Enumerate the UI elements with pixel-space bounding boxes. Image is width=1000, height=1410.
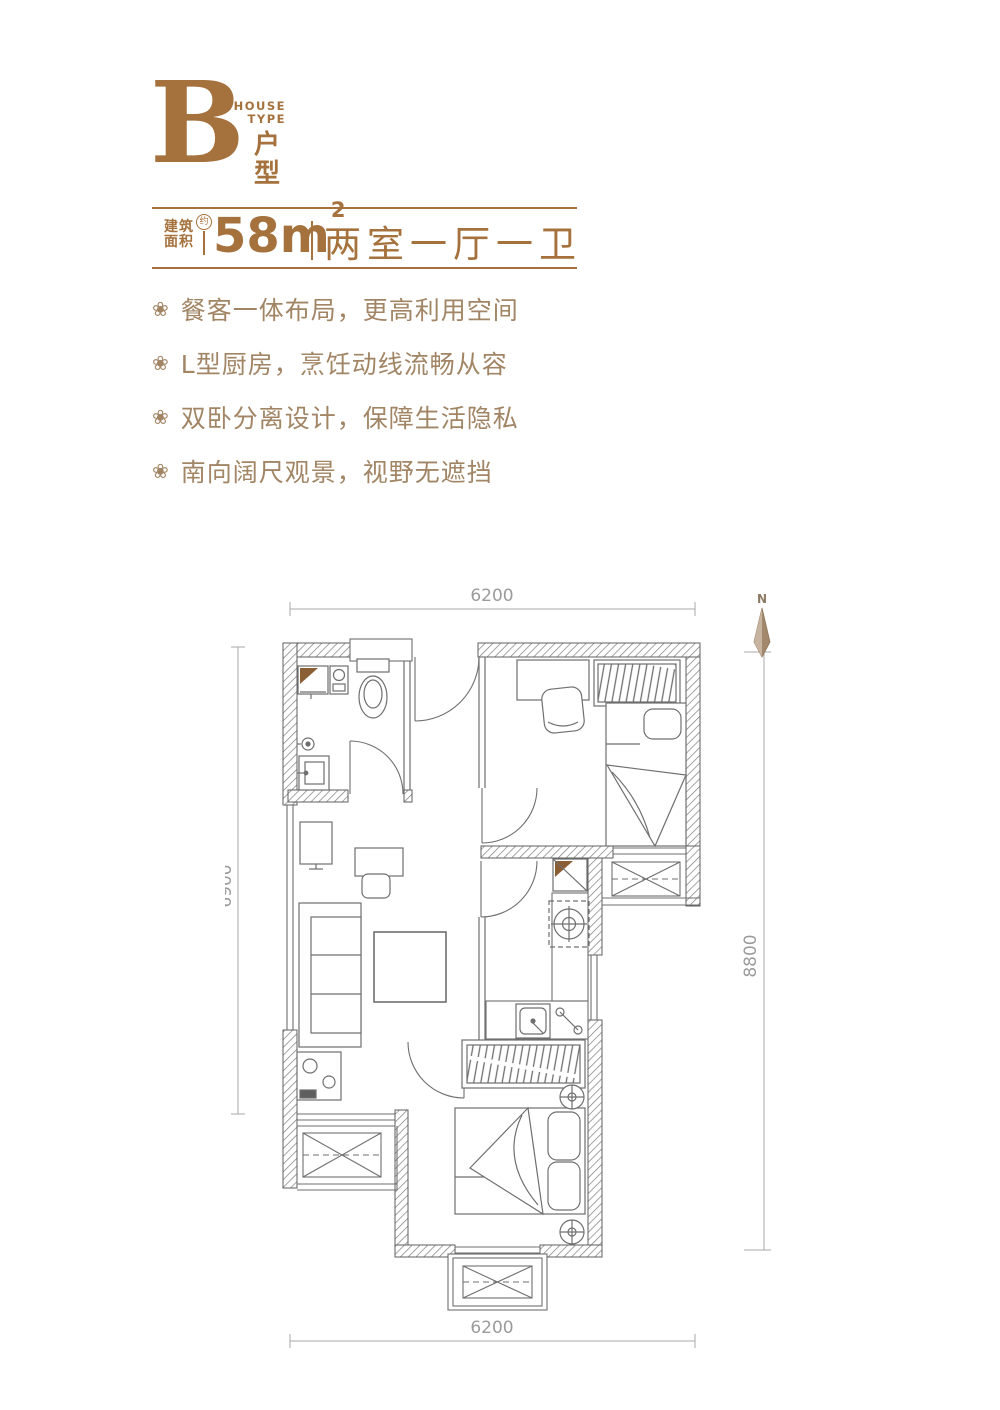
area-label-line2: 面积 <box>164 235 194 250</box>
dim-right-label: 8800 <box>741 934 761 977</box>
sofa-icon <box>299 903 361 1047</box>
area-label: 建筑 面积 <box>164 220 194 251</box>
balcony <box>448 1254 547 1310</box>
ac-platform-left <box>297 1126 397 1190</box>
approx-stem <box>203 231 205 255</box>
feature-text: 双卧分离设计，保障生活隐私 <box>181 399 519 435</box>
north-label: N <box>757 592 767 606</box>
dimension-right: 8800 <box>741 652 771 1250</box>
house-type-en: HOUSE TYPE <box>222 100 286 126</box>
bath-cabinet-icon <box>330 666 348 694</box>
toilet-icon <box>357 659 389 718</box>
washer-icon <box>298 666 328 699</box>
feature-item: ❀餐客一体布局，更高利用空间 <box>152 296 519 322</box>
coffee-table-icon <box>374 932 446 1002</box>
feature-item: ❀双卧分离设计，保障生活隐私 <box>152 404 519 430</box>
basin-icon <box>297 756 329 790</box>
layout-description: 两室一厅一卫 <box>324 214 582 268</box>
feature-text: L型厨房，烹饪动线流畅从容 <box>181 345 508 381</box>
area-number: 58 <box>213 208 280 264</box>
floor-plan: 6200 6900 8800 6200 N <box>225 580 800 1360</box>
house-type-en-line2: TYPE <box>222 113 286 126</box>
divider-bottom <box>152 267 577 269</box>
equipment-platform-right <box>602 862 700 905</box>
feature-text: 餐客一体布局，更高利用空间 <box>181 291 519 327</box>
bathroom-door <box>350 741 403 794</box>
flyer-page: B HOUSE TYPE 户型 建筑 面积 约 58m2 两室一厅一卫 ❀餐客一… <box>0 0 1000 1410</box>
faucet-valve-icon <box>556 1008 582 1034</box>
bed2-icon <box>455 1108 585 1214</box>
dimension-top: 6200 <box>290 586 695 616</box>
sink-icon <box>516 1004 550 1038</box>
fridge-icon <box>553 859 587 891</box>
approx-circle: 约 <box>196 214 212 230</box>
feature-item: ❀L型厨房，烹饪动线流畅从容 <box>152 350 519 376</box>
dim-bottom-label: 6200 <box>470 1318 513 1338</box>
feature-item: ❀南向阔尺观景，视野无遮挡 <box>152 458 519 484</box>
dim-top-label: 6200 <box>470 586 513 606</box>
wardrobe2-icon <box>462 1040 585 1088</box>
vertical-separator <box>311 221 313 260</box>
house-type-cn: 户型 <box>254 131 281 189</box>
flower-icon: ❀ <box>152 461 170 481</box>
stove-icon <box>549 901 589 947</box>
flower-icon: ❀ <box>152 299 170 319</box>
dim-left-label: 6900 <box>225 864 236 907</box>
bed1-icon <box>606 703 686 846</box>
bedroom1-door <box>482 788 537 843</box>
dimension-bottom: 6200 <box>290 1318 695 1348</box>
tv-icon <box>300 822 332 869</box>
area-unit: m <box>280 208 330 264</box>
kitchen-door <box>481 861 537 917</box>
dimension-left: 6900 <box>225 647 245 1114</box>
approx-badge: 约 <box>196 214 212 255</box>
feature-list: ❀餐客一体布局，更高利用空间 ❀L型厨房，烹饪动线流畅从容 ❀双卧分离设计，保障… <box>152 296 519 512</box>
feature-text: 南向阔尺观景，视野无遮挡 <box>181 453 493 489</box>
bedroom2-door <box>408 1042 464 1098</box>
wardrobe1-icon <box>594 660 680 706</box>
desk-chair-icon <box>541 686 585 734</box>
flower-icon: ❀ <box>152 353 170 373</box>
entry-door <box>415 657 479 721</box>
shower-icon <box>297 738 314 750</box>
flower-icon: ❀ <box>152 407 170 427</box>
dining-table-icon <box>355 848 403 898</box>
media-cabinet-icon <box>297 1052 341 1100</box>
north-indicator: N <box>754 592 770 657</box>
